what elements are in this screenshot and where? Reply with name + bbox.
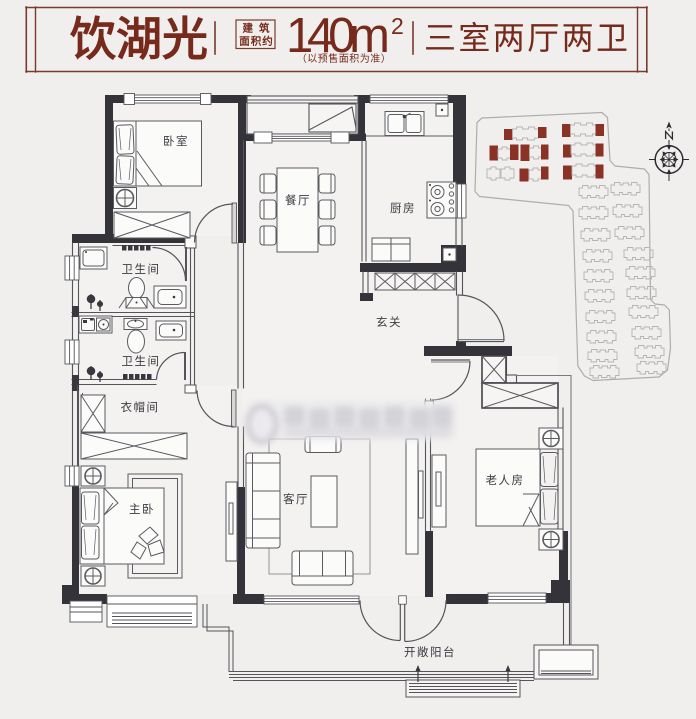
svg-text:（以预售面积为准）: （以预售面积为准） <box>297 52 392 65</box>
svg-text:建筑: 建筑 <box>242 22 276 35</box>
svg-text:卫生间: 卫生间 <box>122 262 161 276</box>
svg-text:主卧: 主卧 <box>129 503 155 516</box>
svg-text:老人房: 老人房 <box>486 474 525 487</box>
svg-text:厨房: 厨房 <box>390 202 416 215</box>
svg-text:餐厅: 餐厅 <box>285 193 311 207</box>
svg-text:饮湖光: 饮湖光 <box>70 13 208 65</box>
svg-text:卫生间: 卫生间 <box>122 354 161 368</box>
svg-text:面积约: 面积约 <box>239 35 274 48</box>
svg-text:玄关: 玄关 <box>376 315 402 329</box>
svg-text:客厅: 客厅 <box>283 492 309 506</box>
svg-text:卧室: 卧室 <box>163 134 189 148</box>
svg-text:2: 2 <box>391 13 404 39</box>
svg-text:开敞阳台: 开敞阳台 <box>404 645 456 659</box>
svg-text:衣帽间: 衣帽间 <box>121 400 160 414</box>
